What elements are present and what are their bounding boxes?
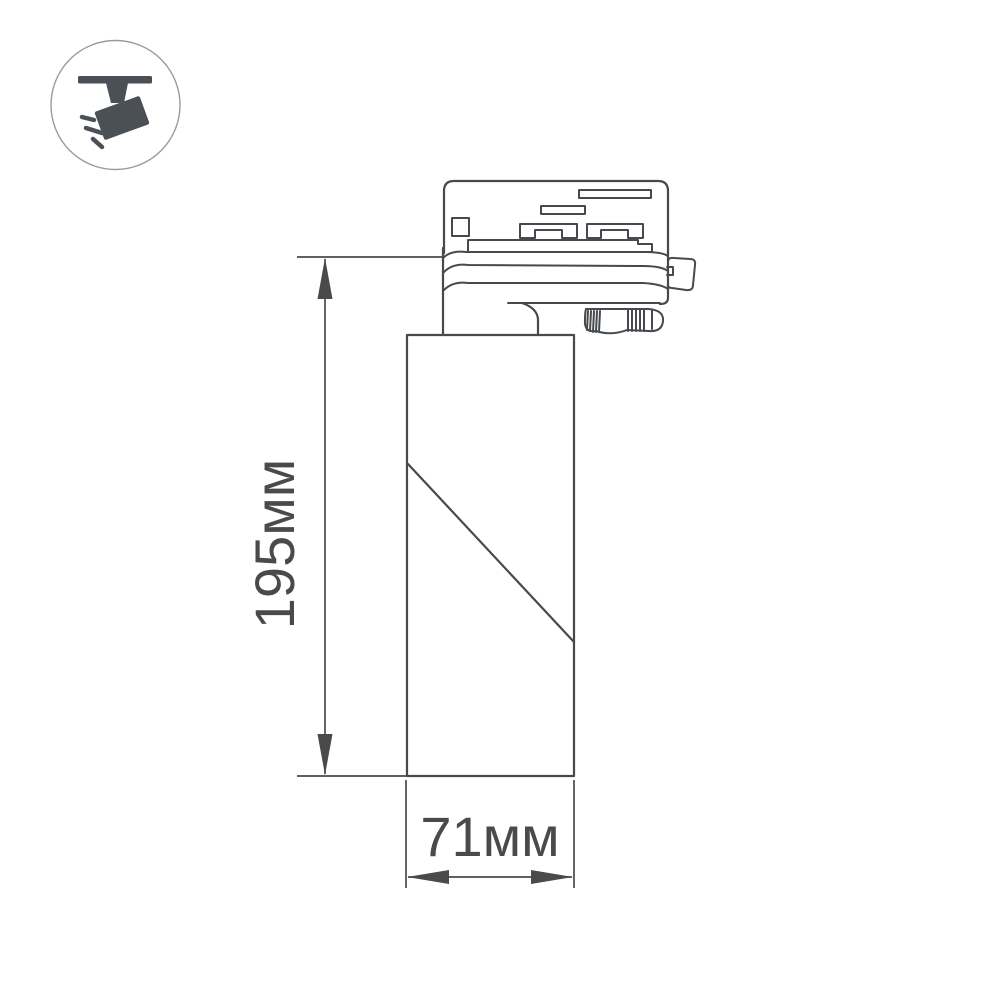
adjustment-knob: [585, 309, 663, 333]
locking-tab: [667, 258, 695, 290]
collar-band-1: [443, 252, 668, 258]
contact-bridge-right: [587, 224, 643, 238]
housing-diagonal-seam: [408, 464, 574, 642]
contact-strip-long: [579, 190, 651, 198]
contact-bridge-left: [520, 224, 577, 238]
neck-right-edge: [522, 303, 538, 335]
tab-outline: [668, 258, 695, 290]
width-dimension: 71мм: [406, 780, 574, 888]
collar-band-2: [444, 265, 668, 272]
height-arrow-down: [318, 734, 333, 775]
product-type-badge: [51, 41, 180, 170]
height-arrow-up: [318, 258, 333, 299]
width-arrow-left: [407, 870, 449, 884]
light-ray-1: [82, 117, 94, 120]
lamp-housing: [407, 335, 574, 776]
contact-strip-small: [541, 206, 585, 214]
contact-rail: [468, 240, 652, 252]
track-adapter: [443, 181, 695, 335]
adapter-head-outline: [444, 181, 668, 253]
ceiling-track-bar: [78, 76, 152, 84]
contact-square: [452, 218, 469, 236]
collar-band-3: [444, 283, 668, 290]
luminaire-drawing: 195мм 71мм: [0, 0, 1000, 1000]
adapter-collar: [443, 248, 668, 335]
knob-ribs-right: [628, 309, 652, 331]
knob-ribs-left: [587, 311, 600, 332]
collar-right-edge: [660, 252, 668, 304]
width-dimension-label: 71мм: [420, 805, 559, 868]
dimension-drawing-page: 195мм 71мм: [0, 0, 1000, 1000]
width-arrow-right: [531, 870, 573, 884]
height-dimension-label: 195мм: [243, 459, 306, 629]
housing-body: [407, 335, 574, 776]
